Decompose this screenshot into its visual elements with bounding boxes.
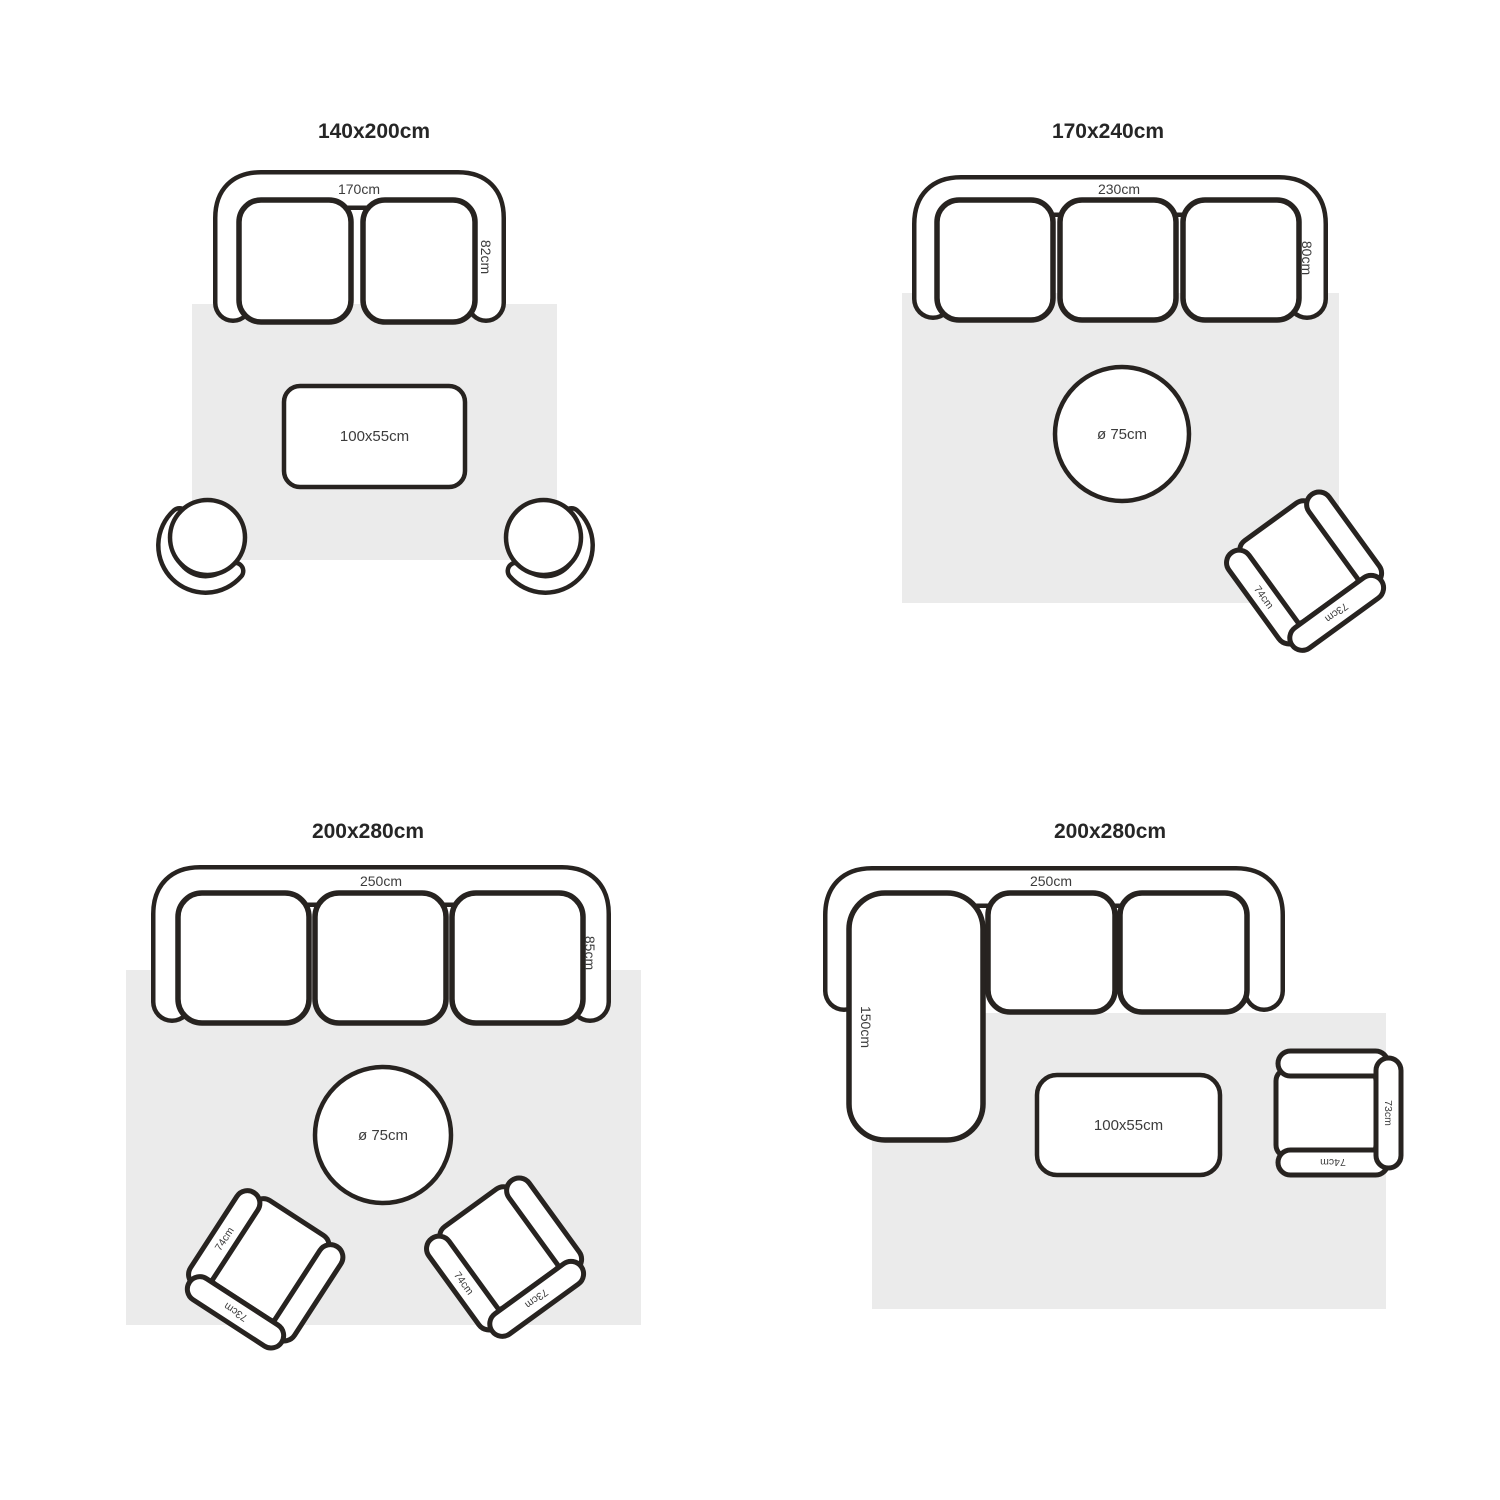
quadrant-170x240: 170x240cm 230cm 80cm ø 75cm 74cm 73cm [902, 120, 1394, 659]
rug-size-guide: 140x200cm 170cm 82cm 100x55cm 1 [0, 0, 1500, 1500]
sofa-3-seat: 250cm 85cm [172, 873, 598, 1023]
quadrant-title: 140x200cm [318, 120, 430, 143]
sofa-depth-label: 85cm [582, 936, 598, 970]
armchair-back-label: 73cm [1382, 1100, 1394, 1126]
sofa-cushion [1120, 893, 1247, 1012]
sofa-chaise-label: 150cm [858, 1006, 874, 1048]
tub-chair-seat [170, 500, 245, 575]
sofa-cushion [452, 893, 583, 1023]
quadrant-140x200: 140x200cm 170cm 82cm 100x55cm [167, 120, 585, 584]
sofa-width-label: 250cm [1030, 873, 1072, 889]
sofa-cushion [988, 893, 1115, 1012]
coffee-table-round: ø 75cm [1055, 367, 1189, 501]
sofa-cushion [1060, 200, 1176, 320]
tub-chair-right [506, 500, 584, 584]
quadrant-200x280-left: 200x280cm 250cm 85cm ø 75cm 74cm 73cm [126, 820, 641, 1357]
sofa-depth-label: 80cm [1299, 241, 1315, 275]
armchair-arm-right [1278, 1051, 1388, 1076]
table-size-label: ø 75cm [358, 1127, 408, 1144]
sofa-width-label: 230cm [1098, 181, 1140, 197]
sofa-cushion [178, 893, 309, 1023]
sofa-cushion [937, 200, 1053, 320]
sofa-cushion [1183, 200, 1299, 320]
table-size-label: ø 75cm [1097, 426, 1147, 443]
quadrant-title: 200x280cm [312, 820, 424, 843]
sofa-3-seat: 230cm 80cm [933, 181, 1315, 320]
sofa-width-label: 250cm [360, 873, 402, 889]
table-size-label: 100x55cm [340, 428, 409, 445]
armchair: 74cm 73cm [1276, 1051, 1401, 1175]
sofa-cushion [363, 200, 475, 322]
quadrant-title: 200x280cm [1054, 820, 1166, 843]
coffee-table-round: ø 75cm [315, 1067, 451, 1203]
coffee-table-rect: 100x55cm [1037, 1075, 1220, 1175]
sofa-width-label: 170cm [338, 181, 380, 197]
sofa-depth-label: 82cm [478, 240, 494, 274]
rug-size-guide-canvas: 140x200cm 170cm 82cm 100x55cm 1 [0, 0, 1500, 1500]
tub-chair-left [167, 500, 245, 584]
quadrant-title: 170x240cm [1052, 120, 1164, 143]
sofa-cushion [315, 893, 446, 1023]
tub-chair-seat [506, 500, 581, 575]
armchair-arm-label: 74cm [1320, 1156, 1346, 1168]
coffee-table-rect: 100x55cm [284, 386, 465, 487]
armchair-seat [1276, 1069, 1376, 1157]
quadrant-200x280-right: 200x280cm 250cm 150cm 100x55cm 74cm 73cm [844, 820, 1401, 1309]
table-size-label: 100x55cm [1094, 1117, 1163, 1134]
sofa-cushion [239, 200, 351, 322]
sofa-2-seat: 170cm 82cm [233, 181, 494, 322]
